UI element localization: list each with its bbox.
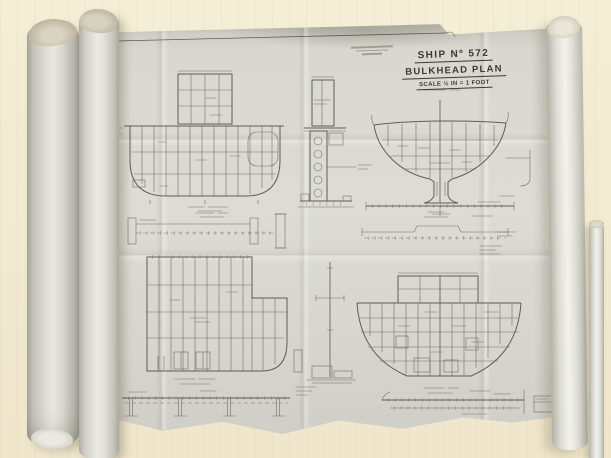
bulkhead-section-bottom-left [147, 257, 302, 384]
plan-title: BULKHEAD PLAN [402, 63, 506, 80]
office-stamp [349, 43, 395, 57]
aft-peak-bulkhead-section [366, 90, 514, 216]
photo-scene: SHIP Nº 572 BULKHEAD PLAN SCALE ½ IN = 1… [0, 0, 611, 458]
ship-number: SHIP Nº 572 [414, 48, 492, 64]
paper-roll-left-outer [27, 24, 79, 446]
plan-strip-top-left [128, 213, 287, 248]
sheet-border-line [116, 32, 455, 41]
bulkhead-section-bottom-right [357, 273, 521, 393]
plan-strip-bottom-left [122, 391, 290, 416]
centre-girder-section [298, 77, 372, 207]
plan-strip-bottom-right [382, 390, 558, 414]
plan-strip-top-right [362, 212, 508, 254]
rolled-sheet-right-edge [546, 20, 588, 450]
bulkhead-section-top-left [108, 71, 284, 211]
paper-tube-right [589, 223, 604, 458]
scale-note: SCALE ½ IN = 1 FOOT [416, 80, 493, 91]
title-block: SHIP Nº 572 BULKHEAD PLAN SCALE ½ IN = 1… [399, 47, 508, 94]
paper-roll-left-inner [79, 13, 119, 458]
mast-detail-bottom-centre [296, 262, 356, 395]
edge-bracket-detail [498, 150, 530, 236]
